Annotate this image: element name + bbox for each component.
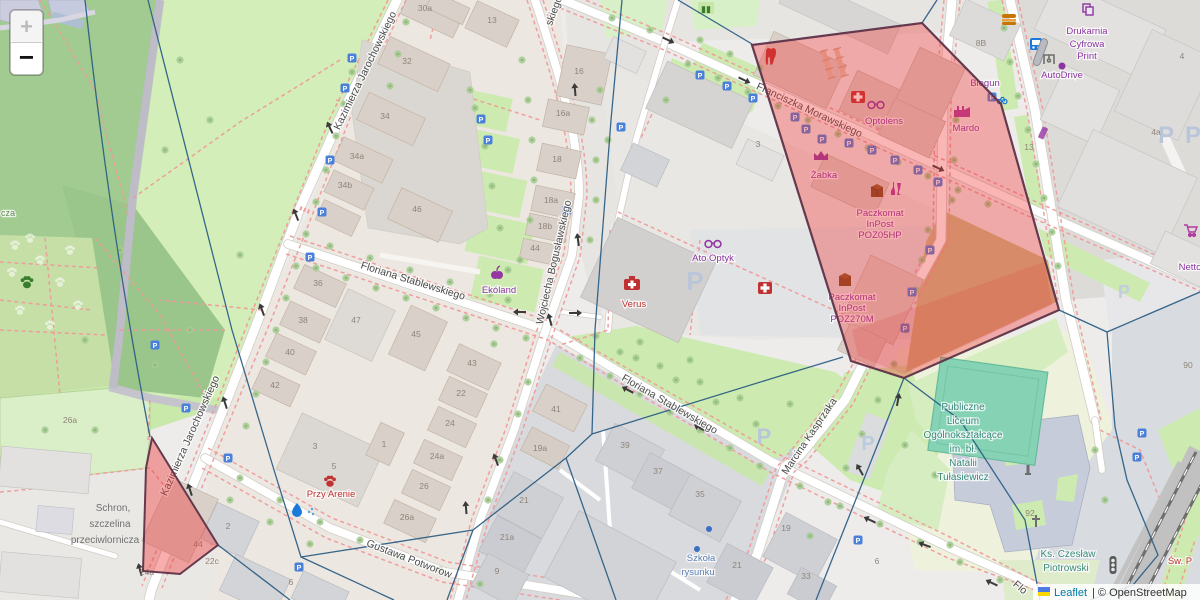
svg-text:19: 19 <box>781 523 791 533</box>
svg-text:34a: 34a <box>350 151 364 161</box>
svg-text:21: 21 <box>519 495 529 505</box>
svg-text:Piotrowski: Piotrowski <box>1043 563 1089 574</box>
svg-text:9: 9 <box>495 566 500 576</box>
svg-text:P: P <box>861 433 874 455</box>
svg-text:P: P <box>350 56 355 63</box>
svg-text:32: 32 <box>402 56 412 66</box>
svg-text:Natalii: Natalii <box>949 458 977 469</box>
svg-text:4: 4 <box>1180 51 1185 61</box>
svg-text:22c: 22c <box>205 556 219 566</box>
svg-text:Netto: Netto <box>1179 262 1200 273</box>
svg-text:AutoDrive: AutoDrive <box>1041 70 1083 81</box>
svg-text:16a: 16a <box>556 108 570 118</box>
svg-text:24: 24 <box>445 418 455 428</box>
svg-text:rysunku: rysunku <box>681 567 714 578</box>
svg-text:Św. P: Św. P <box>1168 555 1192 567</box>
svg-text:1: 1 <box>382 439 387 449</box>
svg-text:6: 6 <box>875 556 880 566</box>
svg-text:Ks. Czesław: Ks. Czesław <box>1040 549 1096 560</box>
svg-text:P: P <box>320 210 325 217</box>
svg-text:38: 38 <box>298 315 308 325</box>
svg-text:37: 37 <box>653 466 663 476</box>
svg-text:22: 22 <box>456 388 466 398</box>
svg-text:P: P <box>1118 282 1130 302</box>
svg-text:41: 41 <box>551 404 561 414</box>
svg-text:36: 36 <box>313 278 323 288</box>
svg-text:26a: 26a <box>63 415 77 425</box>
svg-text:Tułasiewicz: Tułasiewicz <box>937 472 988 483</box>
svg-text:im. bł.: im. bł. <box>950 444 977 455</box>
svg-text:+: + <box>20 14 33 39</box>
svg-text:Print: Print <box>1077 51 1097 62</box>
svg-text:18a: 18a <box>544 195 558 205</box>
svg-text:18: 18 <box>552 154 562 164</box>
svg-text:Leaflet: Leaflet <box>1054 587 1087 599</box>
svg-text:P: P <box>698 73 703 80</box>
svg-text:Ogólnokształcące: Ogólnokształcące <box>924 430 1003 441</box>
svg-text:4a: 4a <box>1151 127 1161 137</box>
svg-text:34b: 34b <box>338 180 352 190</box>
svg-text:44: 44 <box>530 243 540 253</box>
svg-text:Verus: Verus <box>622 299 647 310</box>
svg-text:−: − <box>19 42 34 72</box>
svg-text:46: 46 <box>412 204 422 214</box>
svg-text:P: P <box>226 456 231 463</box>
svg-text:18b: 18b <box>538 221 552 231</box>
svg-text:przeciwlornicza: przeciwlornicza <box>71 535 140 546</box>
svg-text:5: 5 <box>332 461 337 471</box>
svg-text:Schron,: Schron, <box>96 503 130 514</box>
svg-text:8B: 8B <box>976 38 987 48</box>
svg-text:P: P <box>1135 455 1140 462</box>
svg-text:P: P <box>1140 431 1145 438</box>
svg-text:45: 45 <box>411 329 421 339</box>
svg-text:P: P <box>328 158 333 165</box>
svg-text:21: 21 <box>732 560 742 570</box>
svg-text:19a: 19a <box>533 443 547 453</box>
svg-text:90: 90 <box>1183 360 1193 370</box>
svg-text:P: P <box>1185 122 1200 149</box>
svg-text:P: P <box>343 86 348 93</box>
svg-text:3: 3 <box>756 139 761 149</box>
svg-text:Przy Arenie: Przy Arenie <box>307 489 356 500</box>
svg-text:P: P <box>184 406 189 413</box>
svg-text:33: 33 <box>801 571 811 581</box>
svg-text:34: 34 <box>380 111 390 121</box>
svg-text:▮▮: ▮▮ <box>701 4 711 14</box>
svg-text:Liceum: Liceum <box>947 416 979 427</box>
svg-text:Ato Optyk: Ato Optyk <box>692 253 734 264</box>
svg-text:P: P <box>725 84 730 91</box>
svg-text:6: 6 <box>289 577 294 587</box>
svg-text:| © OpenStreetMap: | © OpenStreetMap <box>1092 587 1187 599</box>
svg-text:24a: 24a <box>430 451 444 461</box>
svg-text:P: P <box>479 117 484 124</box>
svg-text:26a: 26a <box>400 512 414 522</box>
svg-text:40: 40 <box>285 347 295 357</box>
svg-text:92: 92 <box>1025 508 1035 518</box>
svg-text:Publiczne: Publiczne <box>941 402 985 413</box>
svg-text:39: 39 <box>620 440 630 450</box>
svg-text:47: 47 <box>351 315 361 325</box>
svg-text:21a: 21a <box>500 532 514 542</box>
svg-text:Ekóland: Ekóland <box>482 285 516 296</box>
svg-text:30a: 30a <box>418 3 432 13</box>
svg-text:P: P <box>751 96 756 103</box>
svg-text:Drukarnia: Drukarnia <box>1066 26 1108 37</box>
svg-text:Cyfrowa: Cyfrowa <box>1070 39 1106 50</box>
svg-text:13: 13 <box>1024 142 1034 152</box>
svg-text:P: P <box>308 255 313 262</box>
svg-text:26: 26 <box>419 481 429 491</box>
svg-text:42: 42 <box>270 380 280 390</box>
svg-text:P: P <box>153 343 158 350</box>
svg-text:Szkoła: Szkoła <box>687 553 716 564</box>
svg-text:13: 13 <box>487 15 497 25</box>
svg-text:35: 35 <box>695 489 705 499</box>
svg-text:P: P <box>757 424 772 449</box>
svg-text:P: P <box>856 538 861 545</box>
svg-text:3: 3 <box>313 441 318 451</box>
svg-text:P: P <box>619 125 624 132</box>
svg-text:16: 16 <box>574 66 584 76</box>
svg-text:szczelina: szczelina <box>89 519 131 530</box>
svg-text:43: 43 <box>467 358 477 368</box>
svg-text:P: P <box>686 266 703 296</box>
svg-text:P: P <box>297 565 302 572</box>
svg-text:P: P <box>486 138 491 145</box>
svg-text:cza: cza <box>1 208 15 218</box>
svg-text:2: 2 <box>226 521 231 531</box>
